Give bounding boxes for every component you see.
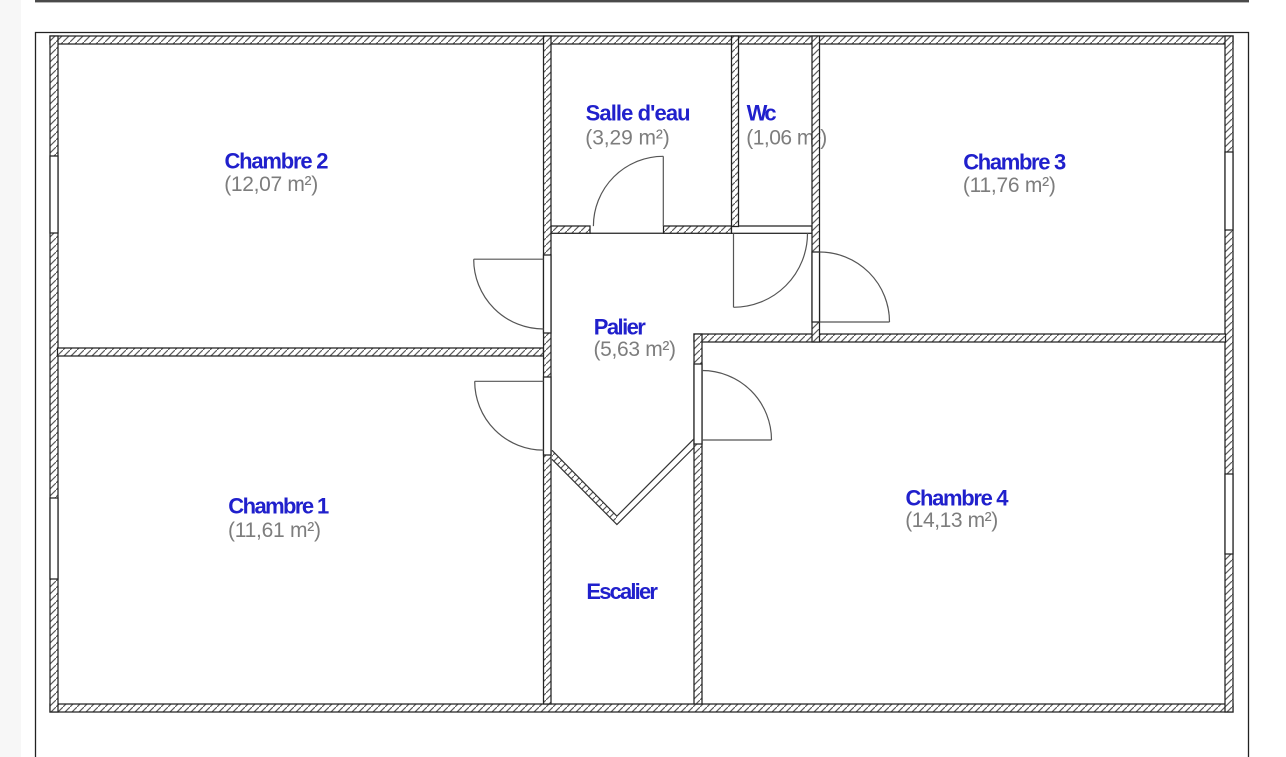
svg-text:Chambre 2: Chambre 2	[225, 148, 329, 173]
svg-text:Chambre 4: Chambre 4	[906, 485, 1010, 510]
svg-text:(12,07 m²): (12,07 m²)	[224, 173, 318, 196]
svg-text:(5,63 m²): (5,63 m²)	[594, 338, 677, 361]
svg-text:(14,13 m²): (14,13 m²)	[905, 509, 998, 532]
svg-text:Palier: Palier	[594, 315, 646, 340]
svg-text:(11,76 m²): (11,76 m²)	[963, 174, 1056, 197]
svg-text:Salle d'eau: Salle d'eau	[586, 100, 691, 125]
svg-text:(3,29 m²): (3,29 m²)	[585, 126, 670, 149]
svg-text:Chambre 3: Chambre 3	[963, 149, 1066, 174]
svg-text:Wc: Wc	[747, 100, 777, 125]
svg-text:Chambre 1: Chambre 1	[228, 494, 329, 519]
svg-text:Escalier: Escalier	[586, 579, 658, 604]
svg-text:(11,61 m²): (11,61 m²)	[228, 519, 321, 542]
